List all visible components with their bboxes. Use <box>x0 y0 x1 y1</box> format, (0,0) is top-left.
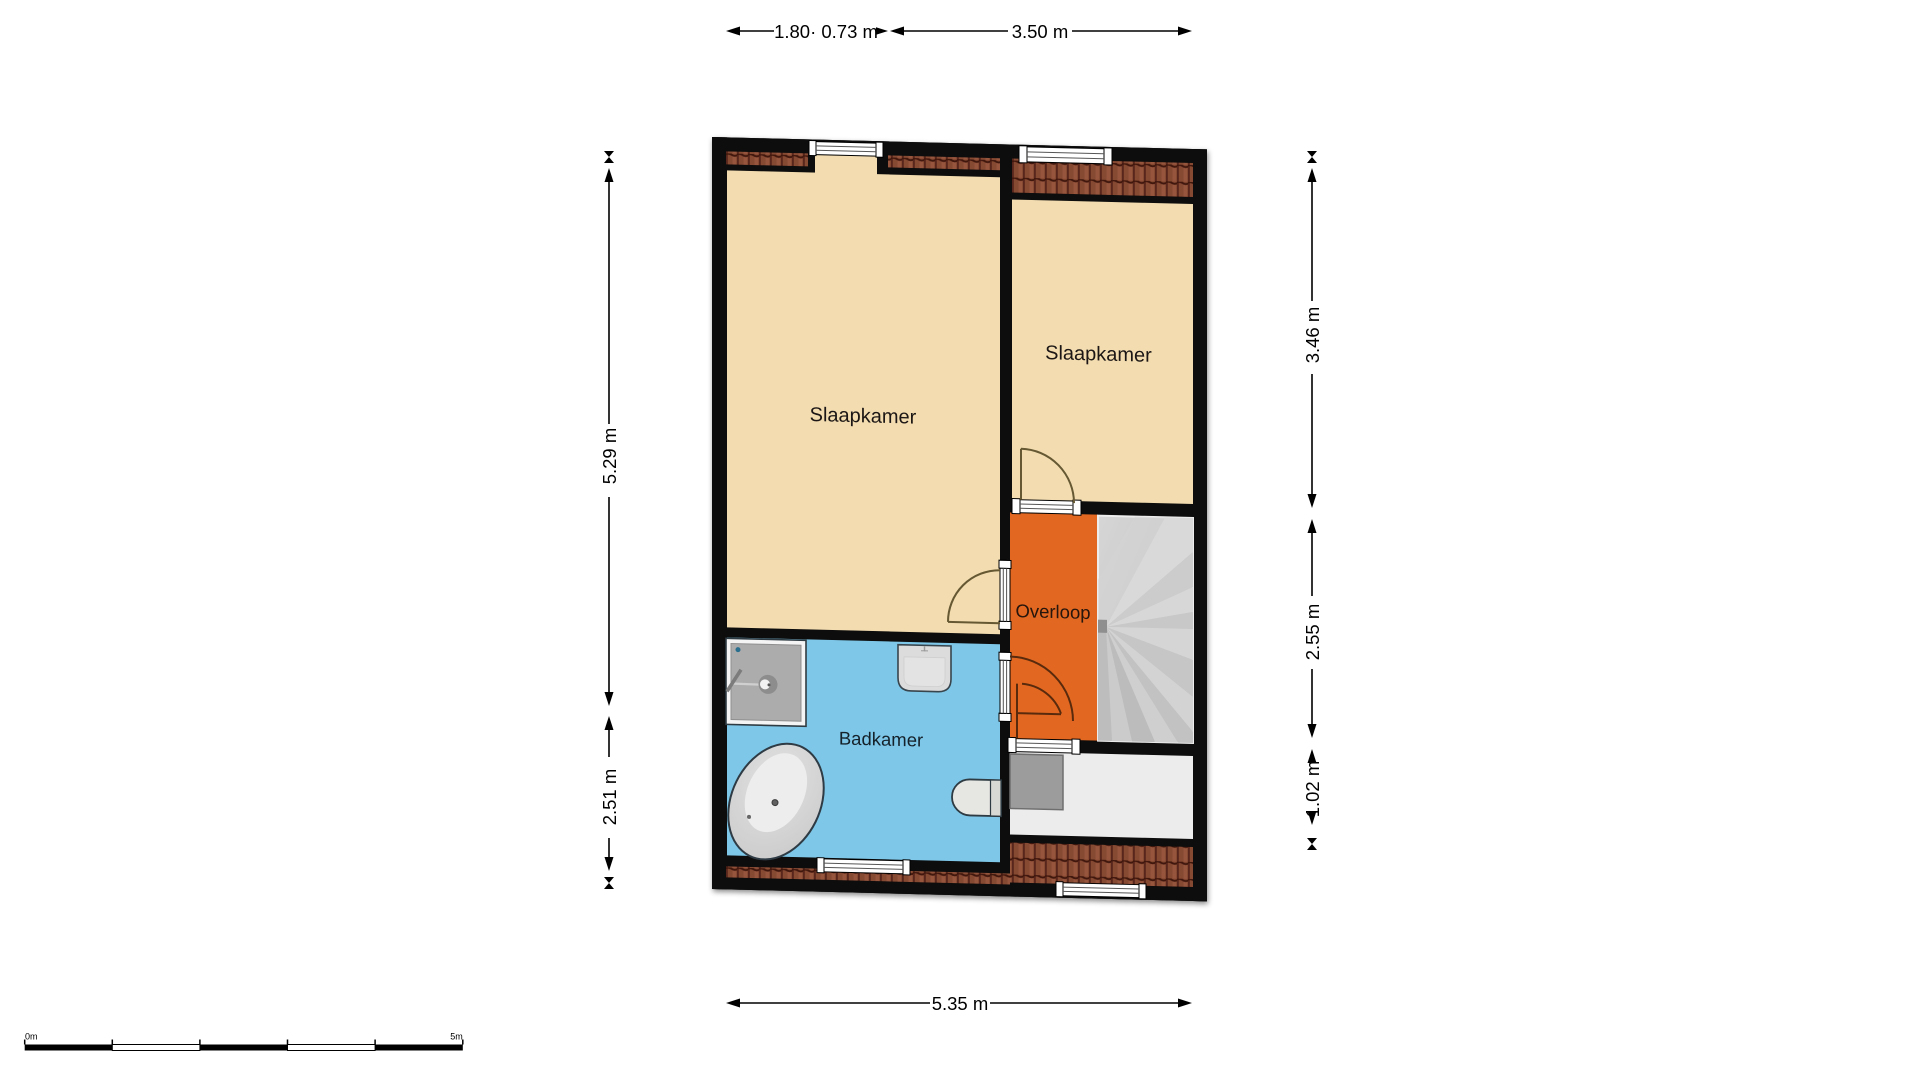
svg-text:1.80· 0.73 m: 1.80· 0.73 m <box>774 21 878 42</box>
svg-text:5m: 5m <box>450 1032 463 1042</box>
svg-text:3.50 m: 3.50 m <box>1012 21 1069 42</box>
svg-text:5.35 m: 5.35 m <box>932 993 989 1014</box>
svg-text:2.55 m: 2.55 m <box>1302 604 1323 661</box>
svg-text:Slaapkamer: Slaapkamer <box>1045 342 1152 367</box>
svg-text:5.29 m: 5.29 m <box>599 428 620 485</box>
svg-text:Badkamer: Badkamer <box>839 727 923 750</box>
svg-text:1.02 m: 1.02 m <box>1302 761 1323 818</box>
svg-text:Overloop: Overloop <box>1015 600 1090 623</box>
svg-text:Slaapkamer: Slaapkamer <box>810 404 917 429</box>
svg-text:0m: 0m <box>25 1032 38 1042</box>
svg-text:2.51 m: 2.51 m <box>599 769 620 826</box>
svg-text:3.46 m: 3.46 m <box>1302 307 1323 364</box>
